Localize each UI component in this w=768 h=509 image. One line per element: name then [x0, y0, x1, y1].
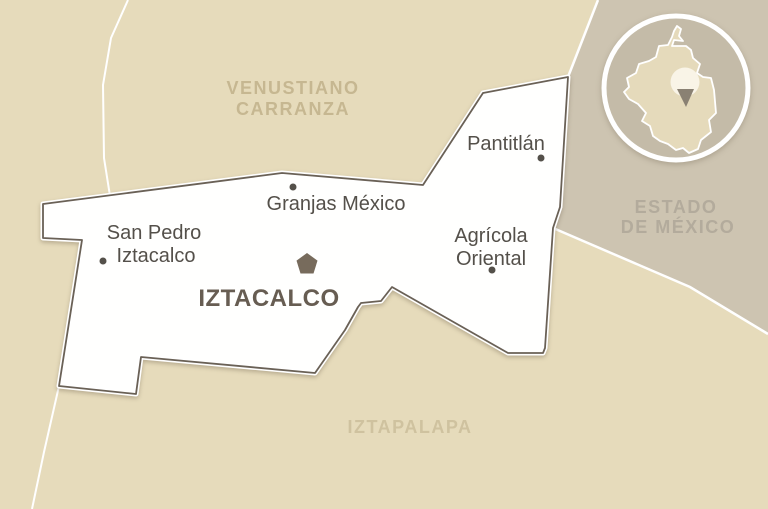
granjas-mexico-dot: [290, 184, 297, 191]
label-agricola-line2: Oriental: [456, 248, 526, 270]
map-canvas: VENUSTIANO CARRANZA IZTAPALAPA ESTADO DE…: [0, 0, 768, 509]
label-venustiano-line2: CARRANZA: [236, 99, 350, 119]
label-granjas-mexico: Granjas México: [267, 193, 406, 215]
label-estado-line2: DE MÉXICO: [621, 216, 736, 237]
label-agricola-line1: Agrícola: [454, 225, 528, 247]
label-iztacalco-main: IZTACALCO: [198, 285, 339, 312]
inset-locator: [604, 16, 748, 160]
label-estado-line1: ESTADO: [635, 197, 718, 217]
pantitlan-dot: [538, 155, 545, 162]
label-iztapalapa: IZTAPALAPA: [348, 417, 473, 437]
label-san-pedro-line2: Iztacalco: [117, 245, 196, 267]
label-venustiano-line1: VENUSTIANO: [226, 78, 359, 98]
label-san-pedro-line1: San Pedro: [107, 222, 202, 244]
san-pedro-dot: [100, 258, 107, 265]
label-pantitlan: Pantitlán: [467, 133, 545, 155]
